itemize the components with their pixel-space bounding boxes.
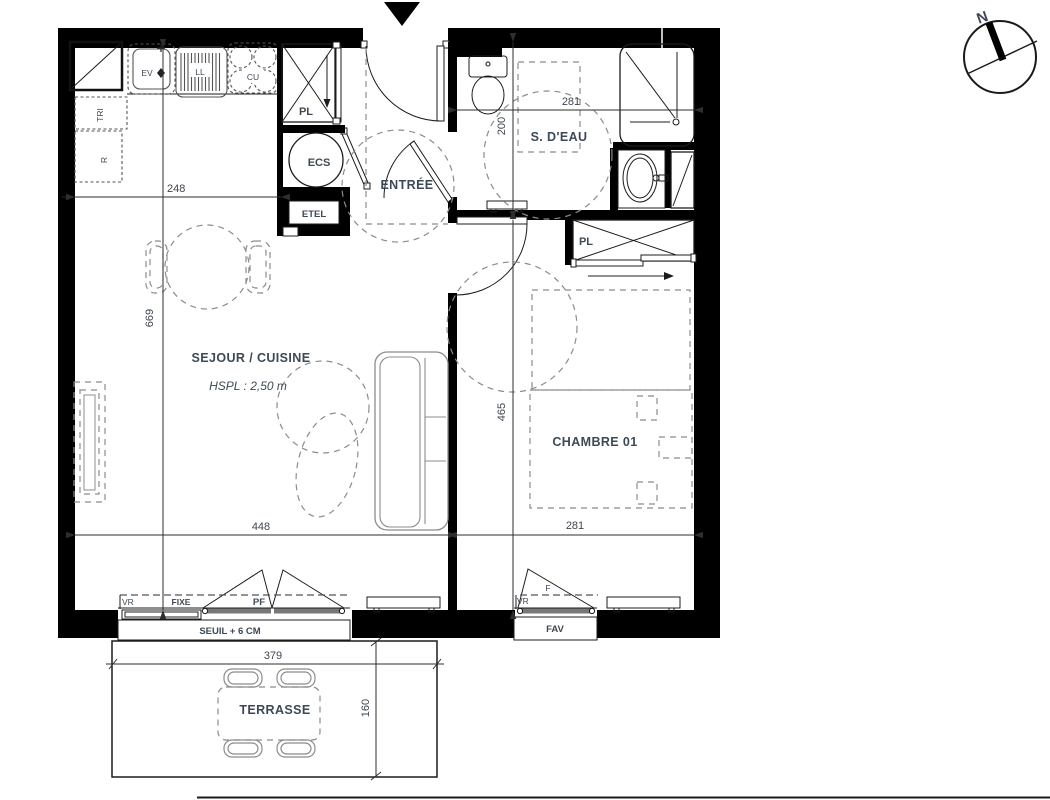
bedroom-furniture bbox=[447, 262, 692, 508]
label-washing-machine: LL bbox=[195, 67, 205, 77]
label-pf: PF bbox=[253, 597, 265, 608]
label-sejour: SEJOUR / CUISINE bbox=[192, 351, 311, 365]
compass-north-label: N bbox=[974, 8, 990, 28]
dim-chambre-length: 465 bbox=[496, 403, 508, 421]
compass: N bbox=[964, 8, 1037, 93]
label-terrasse: TERRASSE bbox=[239, 703, 310, 717]
fridge bbox=[75, 131, 122, 182]
label-water-heater: ECS bbox=[308, 157, 331, 169]
label-entree: ENTRÉE bbox=[380, 177, 433, 192]
label-closet-hall: PL bbox=[299, 106, 313, 118]
label-electrical-panel: ETEL bbox=[302, 209, 326, 220]
label-f-casement: F bbox=[545, 583, 550, 593]
towel-radiator bbox=[671, 152, 694, 208]
dim-sejour-width: 448 bbox=[252, 521, 270, 533]
bedroom-closet bbox=[571, 220, 696, 280]
dining-table bbox=[146, 225, 270, 309]
living-room-furniture bbox=[74, 225, 448, 530]
bed bbox=[530, 390, 692, 508]
washbasin bbox=[618, 150, 668, 208]
label-hob: CU bbox=[247, 72, 259, 82]
dimension-lines bbox=[62, 42, 694, 780]
shower-room-door bbox=[384, 141, 452, 202]
entrance-door bbox=[366, 46, 444, 121]
entrance-marker-triangle bbox=[384, 2, 420, 26]
label-sink: EV bbox=[141, 68, 153, 78]
dim-chambre-width: 281 bbox=[566, 520, 584, 532]
label-vr-chambre: VR bbox=[517, 596, 529, 606]
dim-kitchen-width: 248 bbox=[167, 183, 185, 195]
dim-terrasse-width: 379 bbox=[264, 650, 282, 662]
sofa bbox=[375, 352, 448, 530]
label-fav: FAV bbox=[546, 624, 564, 635]
dim-sejour-length: 669 bbox=[144, 309, 156, 327]
dim-sdeau-width: 281 bbox=[562, 96, 580, 108]
floor-plan-drawing: N SEJOUR / CUISINE HSPL : 2,50 m CHAMBRE… bbox=[0, 0, 1050, 800]
label-chambre: CHAMBRE 01 bbox=[552, 435, 637, 449]
label-hspl: HSPL : 2,50 m bbox=[209, 379, 287, 393]
label-vr-sejour: VR bbox=[122, 597, 134, 607]
duct-shaft bbox=[70, 42, 122, 90]
armchair bbox=[277, 361, 369, 523]
label-sdeau: S. D'EAU bbox=[531, 130, 588, 144]
bedroom-door bbox=[456, 217, 527, 295]
exterior-walls bbox=[58, 28, 720, 638]
toilet bbox=[469, 56, 507, 114]
dim-sdeau-depth: 200 bbox=[496, 117, 508, 135]
label-seuil: SEUIL + 6 CM bbox=[199, 626, 260, 637]
doors bbox=[341, 46, 527, 295]
label-closet-bedroom: PL bbox=[579, 236, 593, 248]
dim-terrasse-depth: 160 bbox=[360, 699, 372, 717]
hall-closet-column bbox=[277, 42, 350, 236]
label-recycling: TRI bbox=[95, 108, 105, 122]
sideboard bbox=[74, 382, 105, 502]
floor-plan-page: N SEJOUR / CUISINE HSPL : 2,50 m CHAMBRE… bbox=[0, 0, 1050, 800]
shower-tray bbox=[620, 44, 694, 146]
label-fixe: FIXE bbox=[172, 597, 191, 607]
cooktop bbox=[228, 43, 278, 93]
label-fridge: R bbox=[99, 157, 109, 163]
